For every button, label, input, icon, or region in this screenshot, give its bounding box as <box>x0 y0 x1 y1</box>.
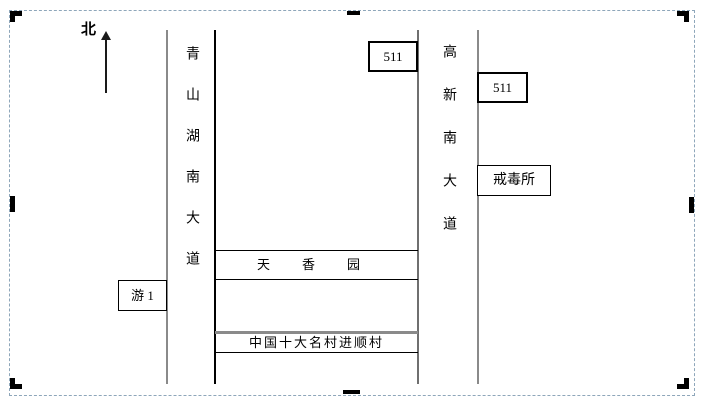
map-sketch-canvas: 北 青山湖南大道 高新南大道 天香园 中国十大名村进顺村 511 511 戒毒所… <box>0 0 715 402</box>
bus-stop-511-gaoxin-box[interactable]: 511 <box>477 72 528 103</box>
crop-mark-bottom-left <box>10 378 22 389</box>
jinshuncun-bottom-line <box>215 352 418 353</box>
tianxiangyuan-label: 天香园 <box>215 258 418 271</box>
crop-mark-top-left <box>10 11 22 22</box>
bus-stop-511-gaoxin-label: 511 <box>493 81 512 94</box>
north-label: 北 <box>81 22 96 38</box>
crop-mark-bottom-center <box>343 390 360 394</box>
crop-mark-left-center <box>10 196 15 212</box>
jinshuncun-label: 中国十大名村进顺村 <box>215 336 418 349</box>
bus-stop-you1-label: 游 1 <box>131 289 154 302</box>
tianxiangyuan-bottom-line <box>215 279 418 280</box>
tianxiangyuan-top-line <box>215 250 418 251</box>
road-qingshan-left-edge <box>166 30 168 384</box>
bus-stop-you1-box[interactable]: 游 1 <box>118 280 167 311</box>
bus-stop-511-qingshan-label: 511 <box>383 50 402 63</box>
road-gaoxin-label: 高新南大道 <box>440 44 456 259</box>
jinshuncun-top-line <box>215 331 418 334</box>
crop-mark-bottom-right <box>677 378 689 389</box>
crop-mark-right-center <box>689 197 694 213</box>
jiedusuo-label: 戒毒所 <box>493 174 535 187</box>
road-qingshan-label: 青山湖南大道 <box>183 46 199 292</box>
bus-stop-511-qingshan-box[interactable]: 511 <box>368 41 418 72</box>
crop-mark-top-center <box>347 11 360 15</box>
jiedusuo-box[interactable]: 戒毒所 <box>477 165 551 196</box>
north-arrow-icon <box>105 39 107 93</box>
north-arrow-head-icon <box>101 31 111 40</box>
crop-mark-top-right <box>677 11 689 22</box>
